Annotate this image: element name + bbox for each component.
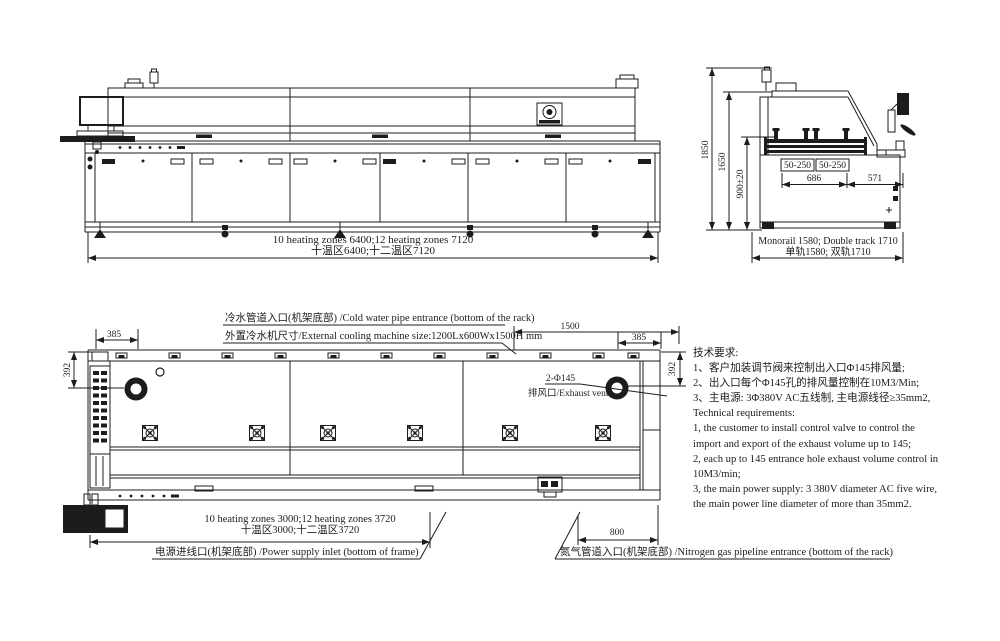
- heating-dim-cn: 十温区3000;十二温区3720: [241, 523, 359, 536]
- side-view-base: [85, 141, 660, 238]
- tech-line-cn-3: 3、主电源: 3Φ380V AC五线制, 主电源线径≥35mm2,: [693, 391, 995, 406]
- dim-1850: 1850: [701, 140, 711, 159]
- heating-dim-en: 10 heating zones 3000;12 heating zones 3…: [204, 514, 395, 525]
- end-view: 1850 1650 900±20 50-250 50-250 686 571 M…: [701, 67, 917, 263]
- dim-385-right: 385: [632, 333, 647, 343]
- exhaust-stack-right: [616, 75, 638, 88]
- technical-requirements: 技术要求: 1、客户加装调节阀来控制出入口Φ145排风量; 2、出入口每个Φ14…: [693, 346, 995, 512]
- dim-385-left-group: 385: [96, 329, 138, 349]
- dim-1650: 1650: [718, 152, 728, 171]
- dim-392-left-group: 392: [63, 352, 124, 388]
- cooling-fans: [143, 426, 611, 441]
- inlet-hole: [156, 368, 164, 376]
- heating-zone-dimension: 10 heating zones 3000;12 heating zones 3…: [90, 512, 430, 548]
- cold-water-annotation: 冷水管道入口(机架底部) /Cold water pipe entrance (…: [223, 311, 542, 354]
- power-note: 电源进线口(机架底部) /Power supply inlet (bottom …: [155, 545, 419, 558]
- dim-385-right-group: 385: [618, 332, 661, 349]
- tech-line-en-1a: 1, the customer to install control valve…: [693, 421, 995, 436]
- signal-tower-icon: [150, 69, 158, 88]
- dim-392-left: 392: [63, 363, 73, 378]
- door-handles: [102, 159, 651, 164]
- exhaust-callout: 2-Φ145: [546, 374, 575, 384]
- dim-800-group: 800: [578, 505, 658, 545]
- cooling-size-note: 外置冷水机尺寸/External cooling machine size:12…: [225, 329, 542, 342]
- tech-line-en-2a: 2, each up to 145 entrance hole exhaust …: [693, 452, 995, 467]
- dim-50-250-left: 50-250: [784, 161, 811, 171]
- chain-drive-box: [538, 477, 562, 497]
- dim-392-right-group: 392: [628, 352, 686, 386]
- tech-line-en-3a: 3, the main power supply: 3 380V diamete…: [693, 482, 995, 497]
- top-view-frame: [88, 350, 660, 500]
- side-view: 10 heating zones 6400;12 heating zones 7…: [60, 69, 660, 263]
- tech-line-cn-1: 1、客户加装调节阀来控制出入口Φ145排风量;: [693, 361, 995, 376]
- brand-logo-icon: [537, 103, 562, 125]
- nitrogen-annotation: 氮气管道入口(机架底部) /Nitrogen gas pipeline entr…: [555, 512, 893, 559]
- control-box: [90, 352, 110, 488]
- dim-800: 800: [610, 528, 625, 538]
- conveyor-rails: [764, 128, 867, 155]
- cold-water-note: 冷水管道入口(机架底部) /Cold water pipe entrance (…: [225, 311, 535, 324]
- tech-line-cn-2: 2、出入口每个Φ145孔的排风量控制在10M3/Min;: [693, 376, 995, 391]
- dim-1500: 1500: [561, 322, 580, 332]
- dim-571: 571: [868, 174, 883, 184]
- exhaust-label: 排风口/Exhaust vent: [528, 387, 609, 399]
- reflow-oven-drawing: 10 heating zones 6400;12 heating zones 7…: [0, 0, 1000, 641]
- drawing-sheet: 10 heating zones 6400;12 heating zones 7…: [0, 0, 1000, 641]
- width-dim-cn: 单轨1580; 双轨1710: [785, 245, 870, 258]
- exhaust-stack-left: [125, 79, 143, 88]
- tech-line-en-3b: the main power line diameter of more tha…: [693, 497, 995, 512]
- tech-line-title-cn: 技术要求:: [693, 346, 995, 361]
- side-view-length-dimension: 10 heating zones 6400;12 heating zones 7…: [88, 232, 658, 263]
- length-dim-cn: 十温区6400;十二温区7120: [311, 243, 436, 257]
- dim-686: 686: [807, 174, 822, 184]
- monitor-icon: [60, 97, 135, 154]
- tech-line-en-1b: import and export of the exhaust volume …: [693, 437, 995, 452]
- width-dim-en: Monorail 1580; Double track 1710: [758, 236, 897, 247]
- nitrogen-note: 氮气管道入口(机架底部) /Nitrogen gas pipeline entr…: [560, 545, 893, 558]
- rail-width-dimensions: 50-250 50-250 686 571: [781, 159, 903, 188]
- signal-tower-icon: [762, 67, 771, 91]
- rail-clamps: [116, 353, 639, 358]
- height-dimensions: 1850 1650 900±20: [701, 68, 775, 230]
- end-view-width-dimension: Monorail 1580; Double track 1710 单轨1580;…: [752, 232, 903, 263]
- dim-392-right: 392: [668, 362, 678, 377]
- dim-900-20: 900±20: [736, 169, 746, 198]
- monitor-icon: [888, 93, 917, 137]
- indicator-dots: [119, 146, 185, 149]
- tech-line-title-en: Technical requirements:: [693, 406, 995, 421]
- indicator-dots: [119, 495, 179, 498]
- exhaust-vent-left: [128, 381, 145, 398]
- dim-50-250-right: 50-250: [819, 161, 846, 171]
- dim-385-left: 385: [107, 330, 122, 340]
- tech-line-en-2b: 10M3/min;: [693, 467, 995, 482]
